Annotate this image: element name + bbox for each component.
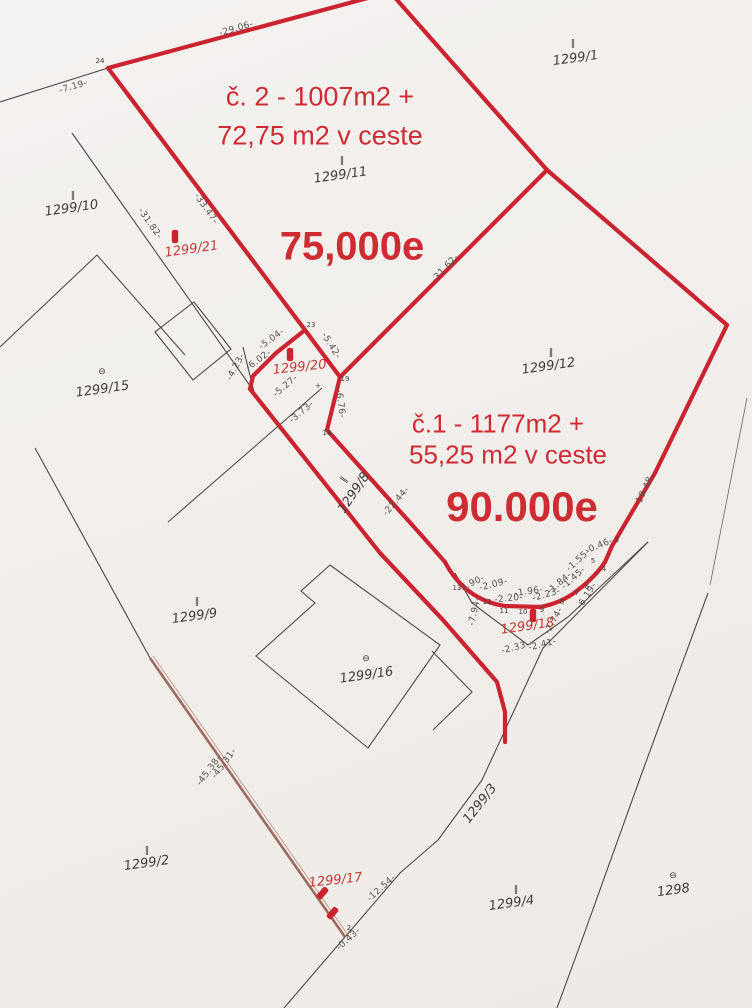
dimension-label: -2.33- bbox=[500, 640, 530, 657]
parcel-number-label: 1299/20 bbox=[272, 357, 327, 378]
parcel-1299-15-boundary bbox=[0, 255, 185, 355]
dimension-label: -29.06- bbox=[218, 19, 254, 38]
dimension-label: -31.62- bbox=[430, 252, 461, 284]
survey-point-label: 23 bbox=[307, 321, 316, 329]
survey-point-label: 6 bbox=[585, 583, 590, 591]
parcel1-right-edge bbox=[612, 325, 727, 546]
building-1299-16-wing bbox=[432, 651, 472, 730]
parcel-tick-marks: ‖ bbox=[531, 611, 536, 621]
dimension-label: -31.82- bbox=[135, 207, 163, 241]
survey-point-label: 18 bbox=[323, 429, 332, 437]
survey-point-label: 10 bbox=[519, 608, 528, 616]
dimension-label: -12.54- bbox=[365, 873, 398, 904]
parcel2-top-left-edge bbox=[108, 0, 390, 68]
road-edge-upper-right bbox=[710, 398, 747, 585]
dimension-label: -3.73- bbox=[287, 399, 316, 425]
parcel-tick-marks: ‖ bbox=[71, 191, 76, 201]
building-theta-symbol: ⊖ bbox=[669, 871, 677, 881]
dimension-label: -7.94- bbox=[467, 596, 483, 626]
parcel1-area-line1: č.1 - 1177m2 + bbox=[412, 409, 584, 440]
parcel-number-label: 1299/16 bbox=[339, 664, 395, 686]
survey-point-label: + bbox=[315, 382, 321, 390]
parcel-tick-marks: ‖ bbox=[340, 156, 345, 166]
survey-point-label: 11 bbox=[500, 607, 509, 615]
survey-point-label: 5 bbox=[591, 557, 595, 565]
survey-point-label: 2 bbox=[347, 924, 351, 932]
dimension-label: -19.48- bbox=[633, 472, 657, 508]
survey-point-label: 9 bbox=[540, 606, 544, 614]
parcel-number-label: 1299/11 bbox=[313, 164, 369, 186]
road-edge-left bbox=[284, 542, 648, 1008]
parcel-tick-marks: ‖ bbox=[195, 597, 200, 607]
dimension-label: -6.76- bbox=[333, 389, 346, 419]
survey-point-label: 4 bbox=[602, 565, 607, 573]
dimension-label: -22.44- bbox=[381, 485, 412, 518]
survey-point-label: 7 bbox=[575, 589, 579, 597]
survey-point-label: 8 bbox=[560, 598, 564, 606]
building-1299-16 bbox=[256, 565, 440, 748]
survey-point-label: 19 bbox=[341, 375, 350, 383]
boundary-line-3182 bbox=[72, 133, 253, 390]
cadastral-map-scan: -29.06--7.19--33.47--31.82--31.62--5.04-… bbox=[0, 0, 752, 1008]
dimension-label: -7.19- bbox=[58, 78, 89, 96]
parcel-number-label: 1299/17 bbox=[308, 870, 364, 891]
parcel-number-label: 1299/3 bbox=[460, 781, 500, 826]
parcel-tick-marks: ‖ bbox=[339, 475, 350, 484]
survey-point-label: 24 bbox=[96, 57, 105, 65]
building-1299-15 bbox=[155, 302, 231, 380]
boundary-line-719 bbox=[0, 68, 108, 102]
parcel-tick-marks: ‖ bbox=[514, 885, 519, 895]
parcel2-price: 75,000e bbox=[280, 225, 425, 270]
survey-point-label: 12 bbox=[483, 598, 492, 606]
boundary-left-middle bbox=[35, 448, 150, 658]
parcel-tick-marks: ‖ bbox=[549, 348, 554, 358]
parcel-number-label: 1299/15 bbox=[75, 378, 131, 400]
brown-line bbox=[150, 658, 345, 937]
parcel-number-label: 1298 bbox=[656, 881, 691, 900]
parcel-number-label: 1299/1 bbox=[552, 48, 599, 69]
parcel1-price: 90.000e bbox=[446, 483, 598, 531]
red-sale-boundaries bbox=[108, 0, 727, 742]
parcel-tick-marks: ‖ bbox=[571, 39, 576, 49]
dimension-label: -2.41- bbox=[527, 637, 557, 654]
parcel1-area-line2: 55,25 m2 v ceste bbox=[409, 440, 607, 471]
parcel-number-label: 1299/4 bbox=[488, 893, 535, 914]
black-boundary-lines bbox=[0, 68, 747, 1008]
parcel2-area-line2: 72,75 m2 v ceste bbox=[217, 121, 423, 152]
parcel-number-label: 1299/9 bbox=[171, 606, 218, 627]
road-edge-right bbox=[557, 593, 708, 1008]
parcel1-top-edge bbox=[547, 170, 727, 325]
parcel-tick-marks: ‖ bbox=[288, 350, 293, 360]
building-theta-symbol: ⊖ bbox=[362, 654, 370, 664]
parcel-tick-marks: ‖ bbox=[173, 232, 178, 242]
building-theta-symbol: ⊖ bbox=[98, 367, 106, 377]
parcel-number-label: 1299/2 bbox=[123, 853, 170, 874]
parcel-tick-marks: ‖ bbox=[145, 846, 150, 856]
parcel-number-label: 1299/12 bbox=[521, 355, 577, 377]
survey-point-label: 3 bbox=[615, 536, 619, 544]
parcel2-area-line1: č. 2 - 1007m2 + bbox=[226, 82, 414, 113]
survey-point-label: 13 bbox=[453, 584, 462, 592]
